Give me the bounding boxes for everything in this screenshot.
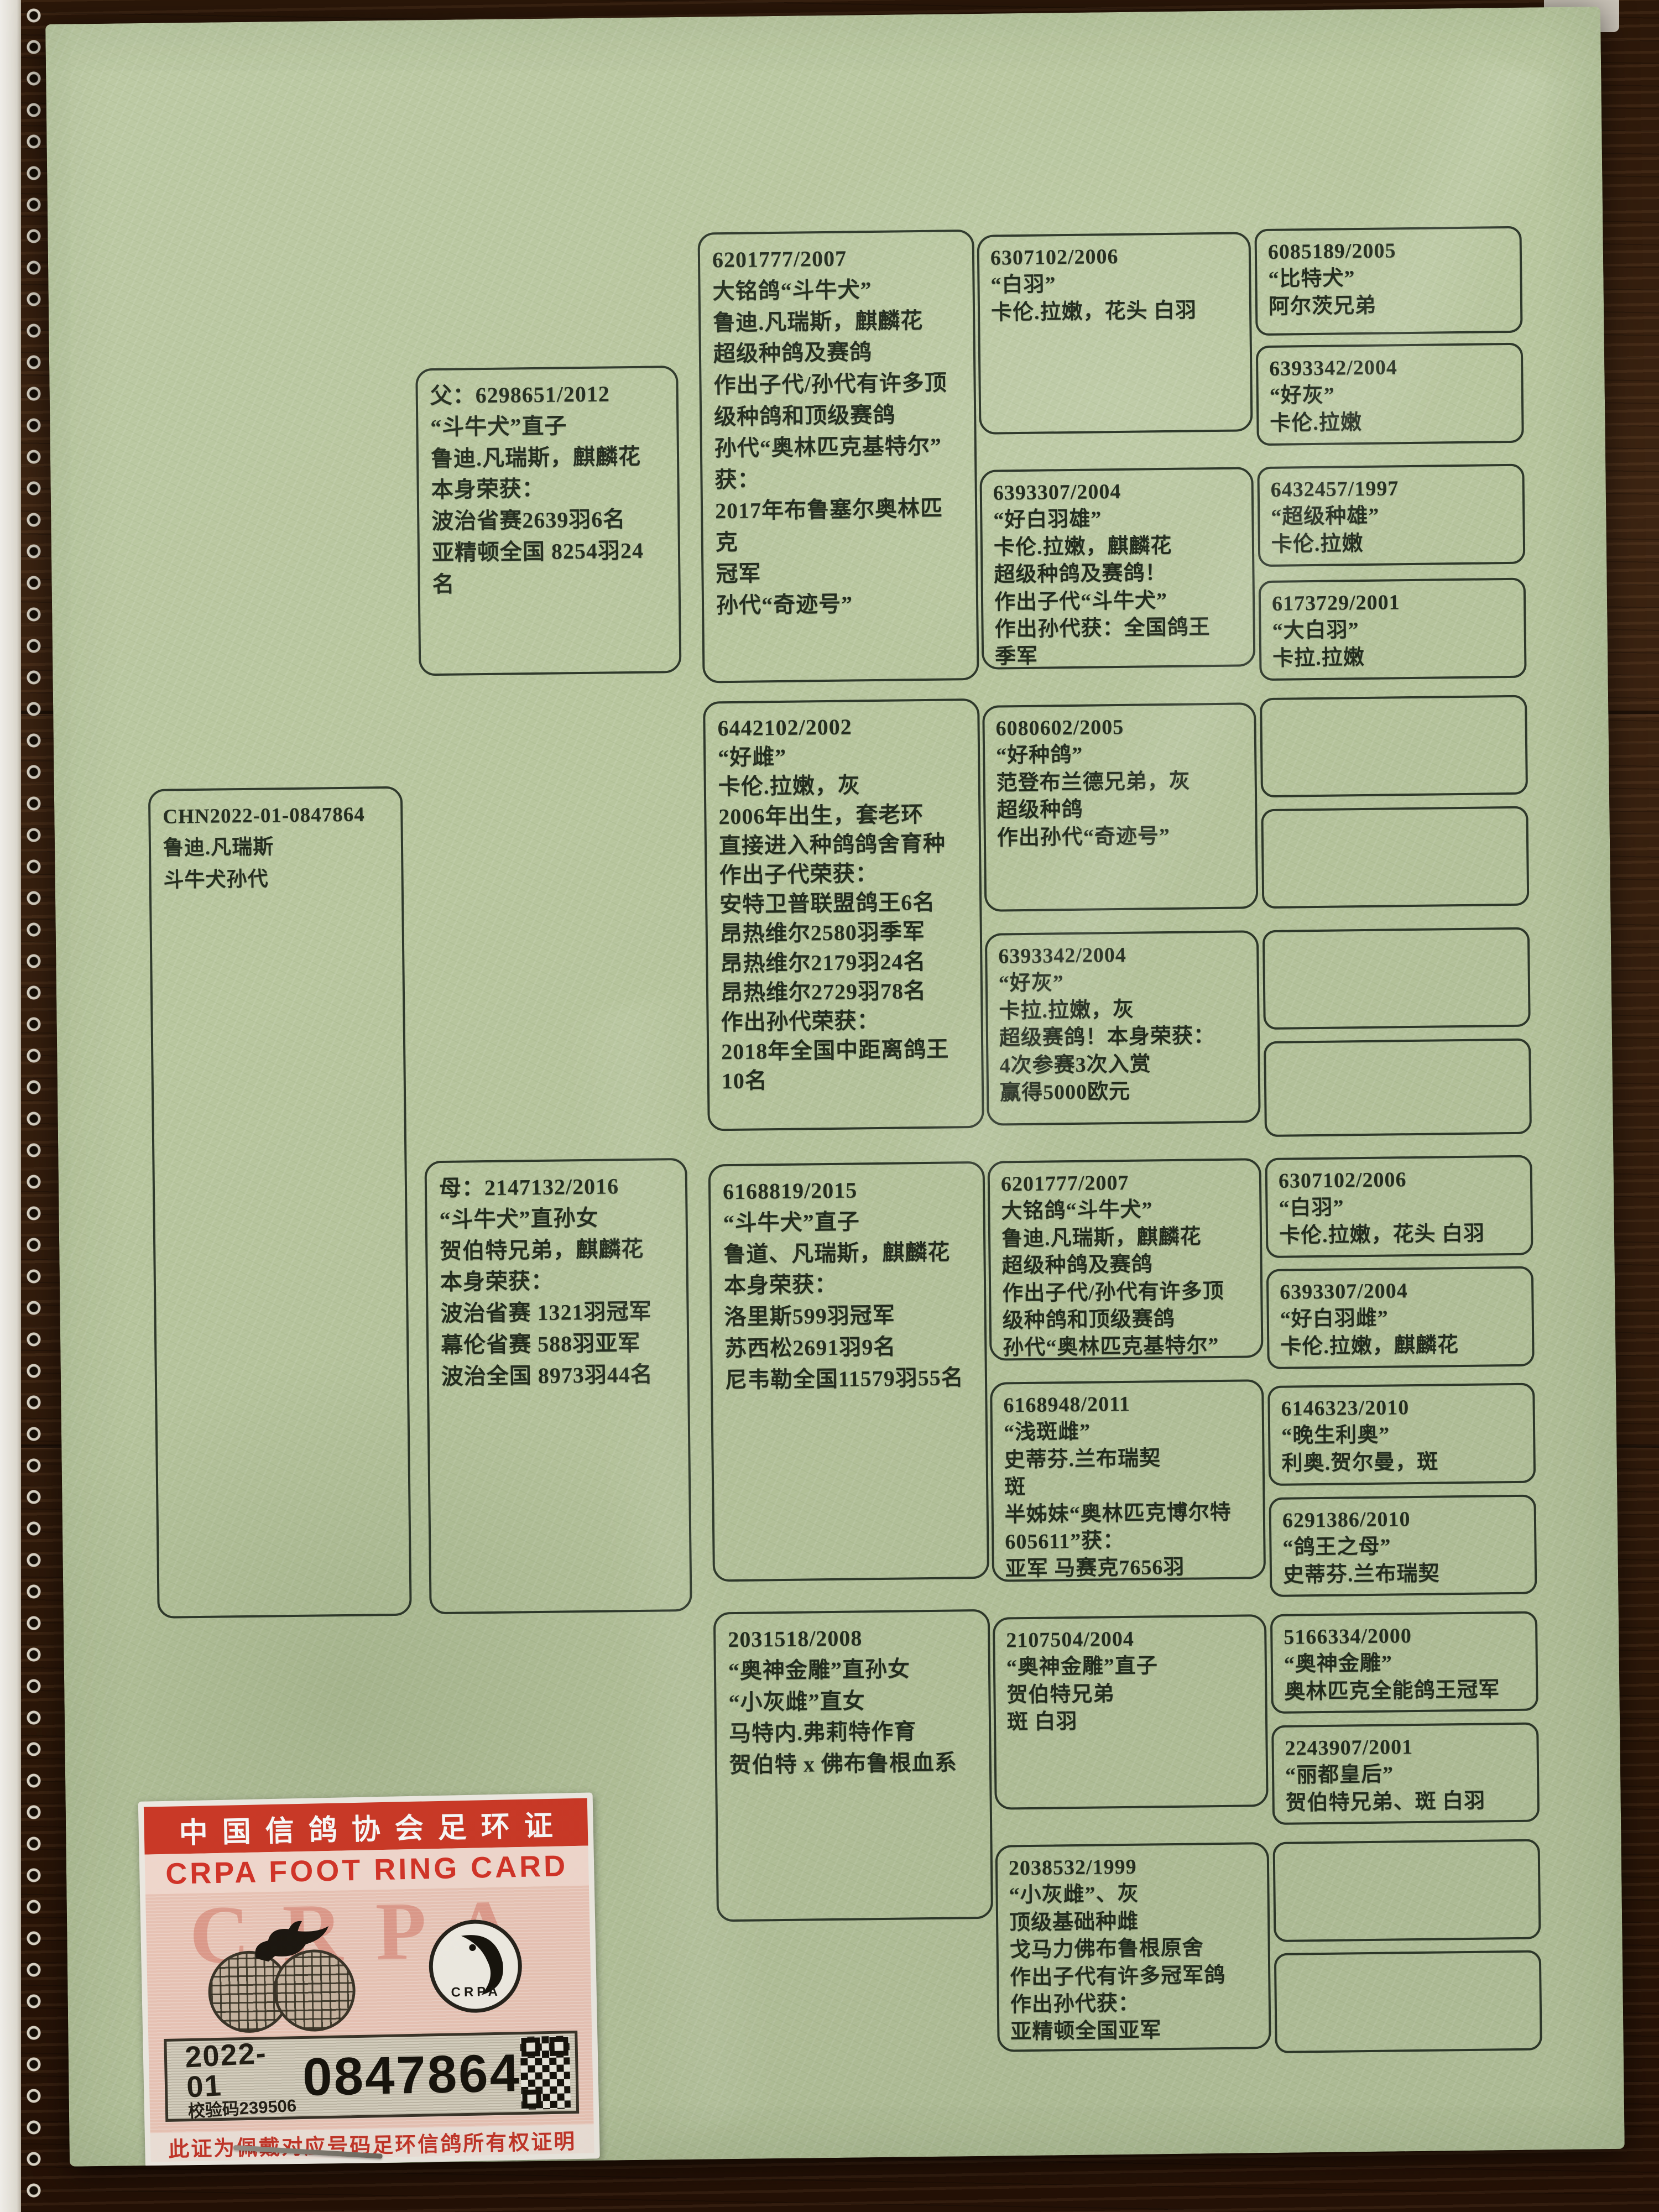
binder-edge-strip: [0, 0, 21, 2212]
pedigree-box-g5-1: 6085189/2005 “比特犬” 阿尔茨兄弟: [1254, 226, 1522, 336]
ring-year-series: 2022-01: [184, 2037, 296, 2103]
pedigree-box-g5-10: 6393307/2004 “好白羽雌” 卡伦.拉嫩，麒麟花: [1266, 1266, 1535, 1369]
pedigree-box-g5-16-empty: [1274, 1950, 1542, 2053]
pedigree-box-g5-11: 6146323/2010 “晚生利奥” 利奥.贺尔曼，斑: [1267, 1383, 1536, 1486]
pedigree-page: CHN2022-01-0847864 鲁迪.凡瑞斯 斗牛犬孙代 父：629865…: [45, 7, 1625, 2167]
pedigree-box-g5-12: 6291386/2010 “鸽王之母” 史蒂芬.兰布瑞契: [1269, 1495, 1537, 1597]
pedigree-box-g5-14: 2243907/2001 “丽都皇后” 贺伯特兄弟、斑 白羽: [1271, 1723, 1540, 1825]
qr-code-icon: [520, 2036, 571, 2110]
pedigree-box-father: 父：6298651/2012 “斗牛犬”直子 鲁迪.凡瑞斯，麒麟花 本身荣获： …: [415, 366, 681, 676]
pedigree-box-g3-1: 6201777/2007 大铭鸽“斗牛犬” 鲁迪.凡瑞斯，麒麟花 超级种鸽及赛鸽…: [697, 229, 979, 684]
pedigree-box-g4-7: 2107504/2004 “奥神金雕”直子 贺伯特兄弟 斑 白羽: [993, 1614, 1269, 1810]
pedigree-box-g4-2: 6393307/2004 “好白羽雄” 卡伦.拉嫩，麒麟花 超级种鸽及赛鸽！ 作…: [979, 467, 1255, 670]
pedigree-box-g4-1: 6307102/2006 “白羽” 卡伦.拉嫩，花头 白羽: [977, 232, 1253, 435]
pedigree-box-g4-6: 6168948/2011 “浅斑雌” 史蒂芬.兰布瑞契 斑 半姊妹“奥林匹克博尔…: [990, 1379, 1266, 1582]
pedigree-box-g4-8: 2038532/1999 “小灰雌”、灰 顶级基础种雌 戈马力佛布鲁根原舍 作出…: [995, 1842, 1271, 2052]
crpa-foot-ring-card: 中国信鸽协会足环证 CRPA FOOT RING CARD CRPA CR: [138, 1792, 600, 2166]
pedigree-box-g3-4: 2031518/2008 “奥神金雕”直孙女 “小灰雌”直女 马特内.弗莉特作育…: [713, 1609, 993, 1922]
pedigree-box-g5-2: 6393342/2004 “好灰” 卡伦.拉嫩: [1256, 343, 1524, 446]
pedigree-box-g5-9: 6307102/2006 “白羽” 卡伦.拉嫩，花头 白羽: [1265, 1155, 1533, 1258]
pedigree-box-g5-15-empty: [1273, 1839, 1541, 1942]
ring-card-body: CRPA CRPA 2022-01: [145, 1886, 594, 2133]
pedigree-box-mother: 母：2147132/2016 “斗牛犬”直孙女 贺伯特兄弟，麒麟花 本身荣获： …: [424, 1158, 692, 1614]
pigeon-silhouette-icon: [246, 1914, 341, 1963]
crpa-emblem-label: CRPA: [433, 1984, 519, 2001]
pedigree-box-g3-2: 6442102/2002 “好雌” 卡伦.拉嫩，灰 2006年出生，套老环 直接…: [703, 698, 984, 1131]
pedigree-box-subject: CHN2022-01-0847864 鲁迪.凡瑞斯 斗牛犬孙代: [148, 786, 412, 1619]
ring-series-block: 2022-01 校验码239506: [184, 2037, 297, 2121]
pedigree-box-g4-3: 6080602/2005 “好种鸽” 范登布兰德兄弟，灰 超级种鸽 作出孙代“奇…: [982, 702, 1258, 912]
pedigree-box-g5-8-empty: [1264, 1039, 1532, 1137]
ring-number: 0847864: [302, 2043, 521, 2108]
pedigree-box-g5-7-empty: [1262, 927, 1531, 1030]
pedigree-box-g4-5: 6201777/2007 大铭鸽“斗牛犬” 鲁迪.凡瑞斯，麒麟花 超级种鸽及赛鸽…: [988, 1158, 1264, 1361]
crpa-emblem-icon: CRPA: [428, 1919, 523, 2013]
pedigree-box-g4-4: 6393342/2004 “好灰” 卡拉.拉嫩，灰 超级赛鸽！本身荣获： 4次参…: [985, 930, 1261, 1126]
fci-globes-pigeon-icon: [207, 1916, 375, 2030]
pedigree-box-g3-3: 6168819/2015 “斗牛犬”直子 鲁道、凡瑞斯，麒麟花 本身荣获： 洛里…: [708, 1161, 990, 1582]
pedigree-box-g5-13: 5166334/2000 “奥神金雕” 奥林匹克全能鸽王冠军: [1270, 1611, 1538, 1714]
pedigree-box-g5-5-empty: [1260, 695, 1528, 797]
photo-of-pedigree-certificate: CHN2022-01-0847864 鲁迪.凡瑞斯 斗牛犬孙代 父：629865…: [0, 0, 1659, 2212]
binder-punch-holes: [21, 0, 46, 2212]
ring-code-strip: 2022-01 校验码239506 0847864: [164, 2031, 579, 2122]
pedigree-box-g5-6-empty: [1261, 806, 1529, 909]
pedigree-box-g5-4: 6173729/2001 “大白羽” 卡拉.拉嫩: [1259, 578, 1527, 681]
ring-card-title-cn: 中国信鸽协会足环证: [144, 1798, 588, 1855]
pedigree-box-g5-3: 6432457/1997 “超级种雄” 卡伦.拉嫩: [1257, 464, 1525, 567]
